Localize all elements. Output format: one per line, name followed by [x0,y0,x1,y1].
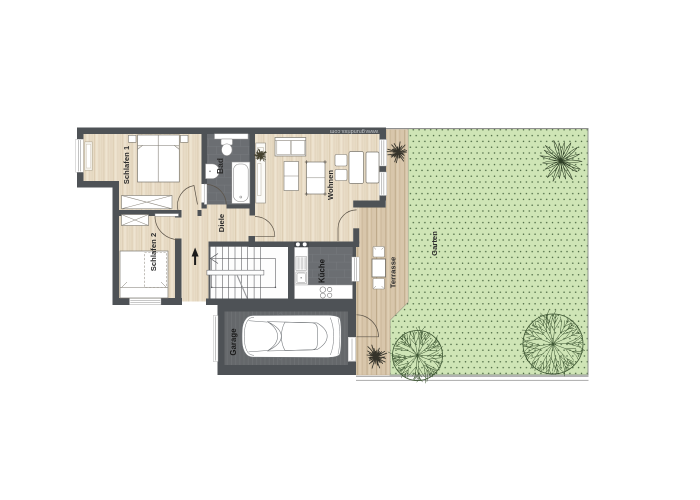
svg-text:Schlafen 1: Schlafen 1 [122,145,131,184]
svg-text:Schlafen 2: Schlafen 2 [149,233,158,271]
svg-text:Terrasse: Terrasse [388,257,397,289]
svg-text:Garage: Garage [229,328,238,356]
svg-text:Bad: Bad [215,158,225,174]
svg-text:Garten: Garten [430,231,439,256]
svg-text:Wohnen: Wohnen [326,170,335,200]
svg-text:Diele: Diele [217,214,226,232]
svg-text:www.grundriss.com: www.grundriss.com [329,128,379,134]
svg-text:Küche: Küche [318,258,327,283]
